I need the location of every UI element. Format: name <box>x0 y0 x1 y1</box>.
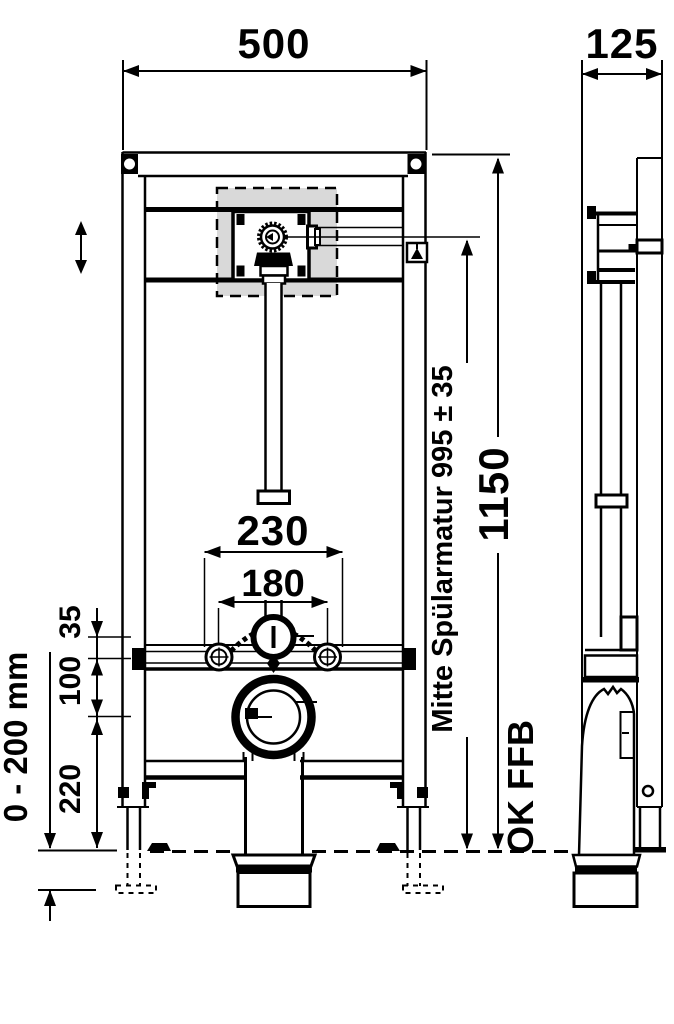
floor-reference-label: OK FFB <box>500 720 541 854</box>
dim-front-width-label: 500 <box>237 20 310 67</box>
floor-reference: OK FFB <box>500 720 541 854</box>
fixing-bolt-left <box>206 644 232 670</box>
installation-frame-drawing: 500 125 230 180 <box>0 0 674 1024</box>
flush-pipe <box>258 283 290 504</box>
pipe-coupling <box>258 491 290 504</box>
foot-clamp-right <box>376 843 400 851</box>
valve-base <box>254 253 293 267</box>
dim-left-stack: 35 100 220 <box>54 605 131 848</box>
rail-connector <box>637 240 662 253</box>
bracket-left <box>142 782 156 799</box>
height-adjust-arrow-icon <box>75 221 87 274</box>
fixing-rail <box>132 600 416 673</box>
flush-pipe-connection <box>254 600 315 673</box>
fixing-bolt-right <box>315 644 341 670</box>
foot-plate <box>633 847 666 853</box>
bracket-right <box>390 782 404 799</box>
dim-flush-center-label: Mitte Spülarmatur 995 ± 35 <box>427 365 459 732</box>
outlet-collar <box>233 855 315 866</box>
corner-hole-left <box>124 159 135 170</box>
dim-fixing-180-label: 180 <box>241 563 304 605</box>
water-level-icon <box>407 243 427 262</box>
outlet-socket <box>238 873 310 907</box>
waste-outlet <box>233 679 317 907</box>
side-view <box>573 60 666 907</box>
corner-hole-right <box>411 159 422 170</box>
drawing-canvas: 500 125 230 180 <box>0 0 674 1024</box>
flush-pipe-side <box>583 283 639 683</box>
dim-220-label: 220 <box>54 764 87 814</box>
dim-35-label: 35 <box>54 605 87 638</box>
cistern-side <box>587 206 637 284</box>
leg-bolt-hole <box>643 786 653 796</box>
dim-side-depth: 125 <box>582 20 662 80</box>
dimensions: 500 125 230 180 <box>0 20 662 921</box>
dim-side-depth-label: 125 <box>585 20 658 67</box>
dim-front-width: 500 <box>123 20 427 150</box>
dim-100-label: 100 <box>54 656 87 706</box>
dim-flush-valve-center: Mitte Spülarmatur 995 ± 35 <box>287 237 480 850</box>
dim-total-height-label: 1150 <box>470 446 517 541</box>
cistern <box>145 188 403 504</box>
outlet-bend-side <box>573 687 640 907</box>
dim-fixing-230-label: 230 <box>236 507 309 554</box>
dim-foot-range-label: 0 - 200 mm <box>0 652 34 823</box>
foot-clamp-left <box>147 843 171 851</box>
